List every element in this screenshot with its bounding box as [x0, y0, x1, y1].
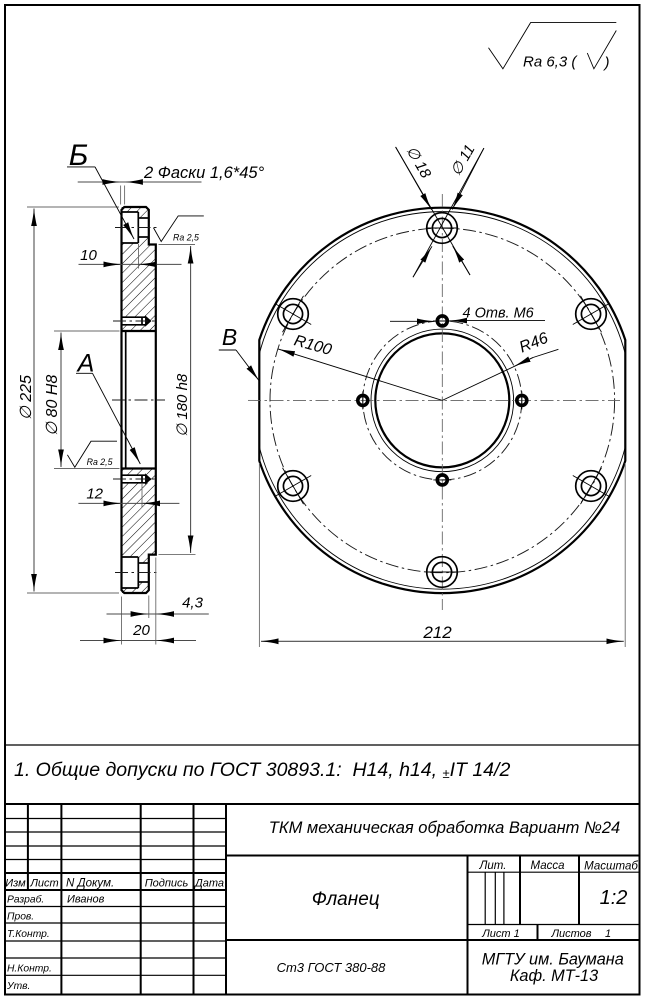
svg-text:Разраб.: Разраб.	[7, 894, 44, 906]
svg-text:Н.Контр.: Н.Контр.	[7, 964, 52, 975]
svg-text:4,3: 4,3	[182, 595, 204, 612]
svg-text:Ra 2,5: Ra 2,5	[173, 232, 199, 242]
svg-text:Изм: Изм	[5, 878, 26, 890]
svg-text:1. Общие допуски по ГОСТ 30893: 1. Общие допуски по ГОСТ 30893.1: Н14, h…	[14, 759, 510, 781]
svg-text:∅ 225: ∅ 225	[18, 375, 35, 420]
svg-text:Масса: Масса	[530, 860, 564, 872]
svg-text:Лист: Лист	[29, 878, 58, 890]
svg-text:1:2: 1:2	[600, 887, 628, 909]
svg-text:∅ 80 H8: ∅ 80 H8	[44, 375, 61, 436]
svg-text:4 Отв. М6: 4 Отв. М6	[463, 306, 535, 322]
svg-text:10: 10	[80, 247, 97, 264]
svg-text:12: 12	[86, 486, 103, 503]
svg-text:МГТУ им. Баумана: МГТУ им. Баумана	[482, 951, 624, 969]
svg-text:Иванов: Иванов	[67, 894, 105, 906]
svg-text:Листов: Листов	[550, 928, 591, 940]
svg-text:ТКМ механическая обработка Вар: ТКМ механическая обработка Вариант №24	[269, 819, 620, 837]
svg-text:212: 212	[422, 623, 452, 642]
svg-text:Фланец: Фланец	[312, 889, 380, 910]
svg-text:Лист 1: Лист 1	[481, 928, 520, 940]
svg-text:20: 20	[132, 622, 150, 639]
svg-text:Пров.: Пров.	[7, 912, 34, 923]
svg-text:Масштаб: Масштаб	[584, 861, 638, 873]
svg-text:Утв.: Утв.	[6, 981, 30, 992]
svg-text:Ст3 ГОСТ 380-88: Ст3 ГОСТ 380-88	[277, 960, 387, 975]
svg-text:2 Фаски 1,6*45°: 2 Фаски 1,6*45°	[143, 164, 265, 182]
svg-text:Ra 6,3 (: Ra 6,3 (	[523, 54, 578, 71]
svg-text:): )	[603, 55, 610, 72]
svg-text:Подпись: Подпись	[145, 878, 189, 890]
svg-text:Ra 2,5: Ra 2,5	[87, 457, 113, 467]
svg-text:В: В	[222, 324, 237, 350]
svg-text:Каф. МТ-13: Каф. МТ-13	[510, 967, 598, 985]
svg-text:Т.Контр.: Т.Контр.	[7, 929, 50, 940]
svg-text:Дата: Дата	[193, 878, 224, 890]
svg-text:∅ 180 h8: ∅ 180 h8	[174, 373, 191, 437]
svg-text:N Докум.: N Докум.	[66, 878, 114, 890]
svg-text:Лит.: Лит.	[479, 860, 507, 872]
svg-text:1: 1	[605, 928, 611, 940]
